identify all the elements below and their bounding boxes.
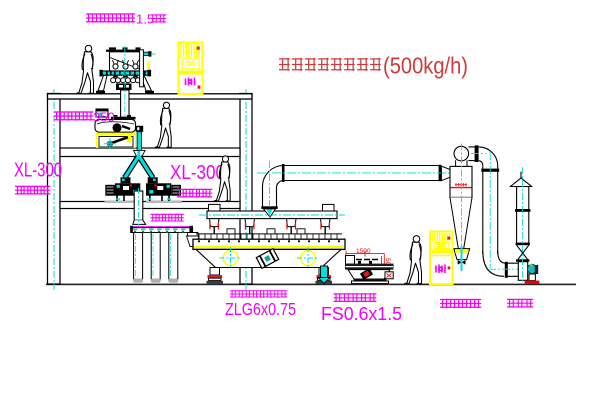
svg-text:1500: 1500: [356, 248, 371, 255]
svg-text:XL-300: XL-300: [14, 160, 62, 182]
svg-text:ZLG6x0.75: ZLG6x0.75: [225, 299, 296, 319]
svg-text:(500kg/h): (500kg/h): [383, 53, 468, 79]
svg-text:350: 350: [93, 110, 115, 125]
svg-text:XL-300: XL-300: [170, 162, 225, 184]
svg-text:FS0.6x1.5: FS0.6x1.5: [321, 304, 402, 324]
